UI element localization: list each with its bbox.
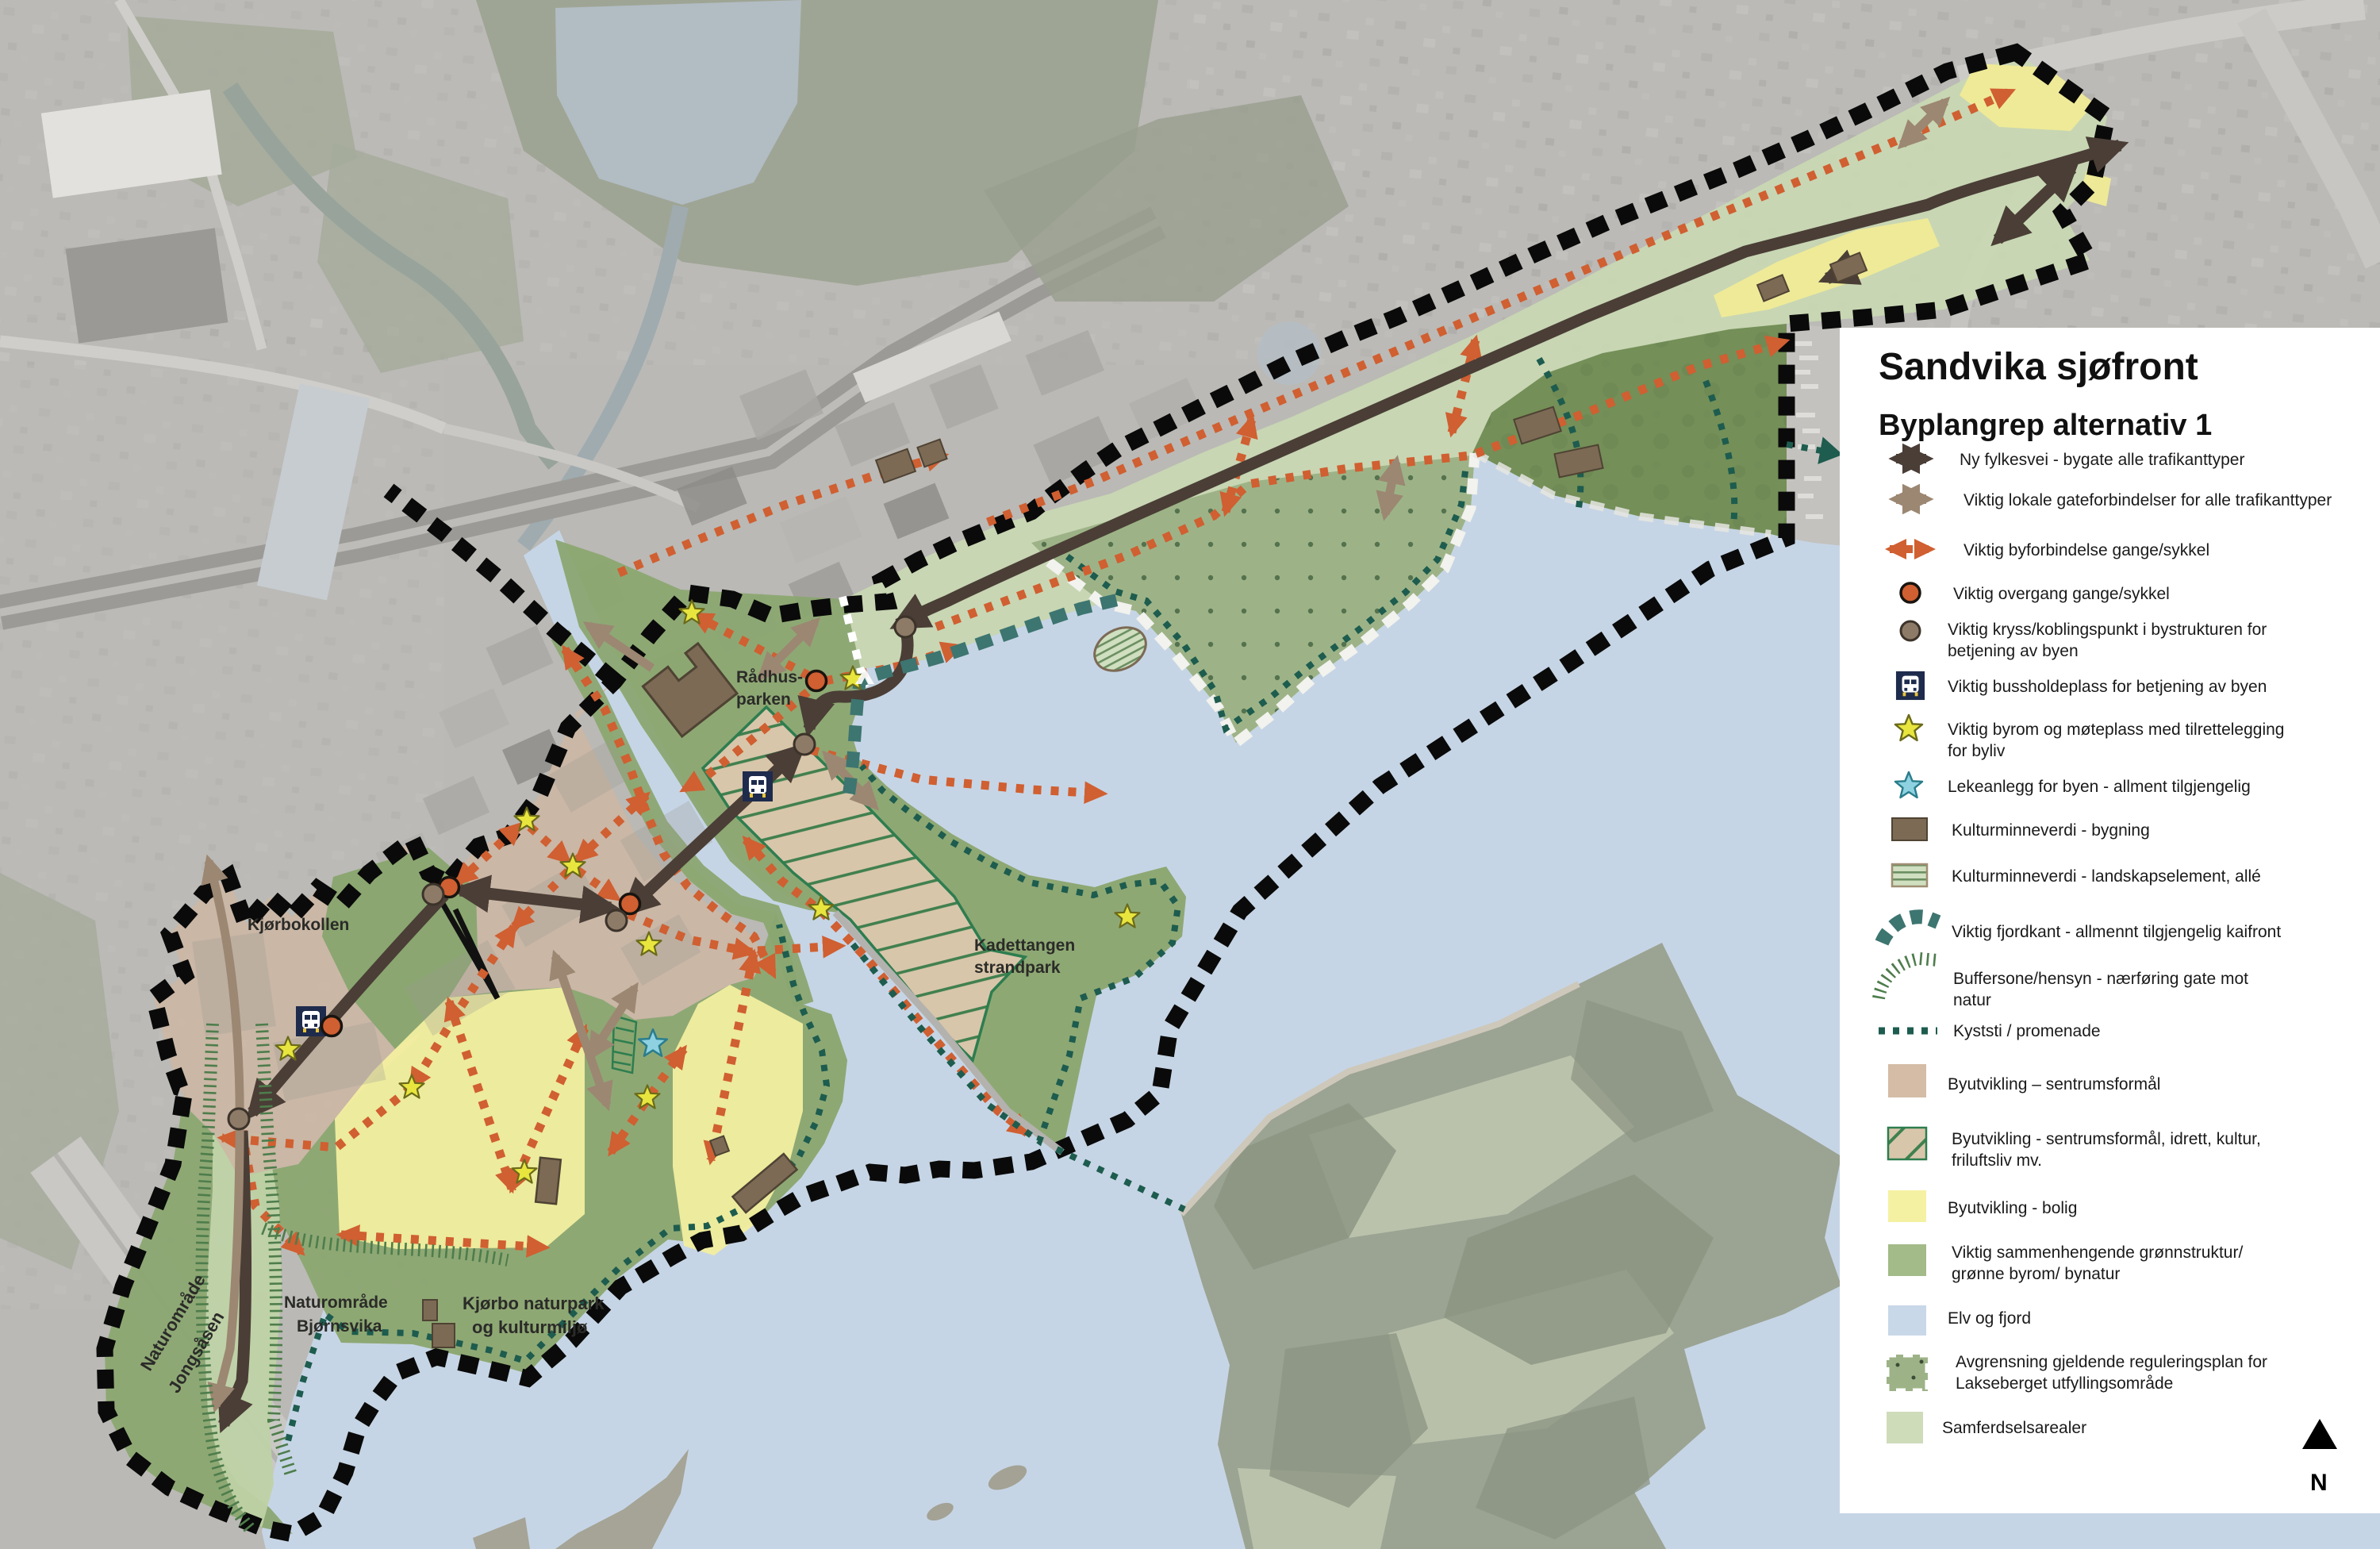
svg-text:parken: parken (736, 690, 791, 709)
svg-text:Rådhus-: Rådhus- (736, 668, 803, 686)
svg-text:Kulturminneverdi - landskapsel: Kulturminneverdi - landskapselement, all… (1952, 867, 2261, 886)
svg-text:Ny fylkesvei - bygate alle tra: Ny fylkesvei - bygate alle trafikanttype… (1960, 451, 2244, 469)
svg-text:Kjørbo naturpark: Kjørbo naturpark (463, 1293, 605, 1313)
svg-text:Viktig overgang gange/sykkel: Viktig overgang gange/sykkel (1953, 585, 2170, 603)
svg-text:natur: natur (1953, 991, 1991, 1009)
svg-text:Kyststi / promenade: Kyststi / promenade (1953, 1022, 2101, 1040)
svg-text:Viktig bussholdeplass for betj: Viktig bussholdeplass for betjening av b… (1948, 678, 2267, 696)
svg-text:Samferdselsarealer: Samferdselsarealer (1942, 1419, 2086, 1437)
svg-text:Byutvikling – sentrumsformål: Byutvikling – sentrumsformål (1948, 1075, 2160, 1094)
svg-text:grønne byrom/ bynatur: grønne byrom/ bynatur (1952, 1265, 2120, 1283)
svg-text:for byliv: for byliv (1948, 742, 2006, 760)
svg-text:Byplangrep alternativ 1: Byplangrep alternativ 1 (1879, 409, 2212, 442)
svg-text:Avgrensning gjeldende reguleri: Avgrensning gjeldende reguleringsplan fo… (1956, 1353, 2267, 1371)
svg-text:friluftsliv mv.: friluftsliv mv. (1952, 1151, 2042, 1170)
svg-text:betjening av byen: betjening av byen (1948, 642, 2079, 660)
svg-text:Viktig sammenhengende grønnstr: Viktig sammenhengende grønnstruktur/ (1952, 1243, 2243, 1262)
svg-text:Lakseberget utfyllingsområde: Lakseberget utfyllingsområde (1956, 1374, 2173, 1393)
svg-text:Viktig byrom og møteplass med: Viktig byrom og møteplass med tilrettele… (1948, 721, 2284, 739)
svg-text:og kulturmiljø: og kulturmiljø (472, 1317, 588, 1337)
svg-text:Byutvikling - sentrumsformål,: Byutvikling - sentrumsformål, idrett, ku… (1952, 1130, 2261, 1148)
svg-text:Bjørnsvika: Bjørnsvika (297, 1317, 382, 1336)
svg-text:Viktig kryss/koblingspunkt i b: Viktig kryss/koblingspunkt i bystrukture… (1948, 621, 2267, 639)
svg-text:Viktig byforbindelse gange/syk: Viktig byforbindelse gange/sykkel (1963, 541, 2209, 559)
svg-text:Byutvikling - bolig: Byutvikling - bolig (1948, 1199, 2077, 1217)
svg-text:Viktig fjordkant - allmennt ti: Viktig fjordkant - allmennt tilgjengelig… (1952, 923, 2281, 941)
svg-text:Elv og fjord: Elv og fjord (1948, 1309, 2031, 1328)
svg-text:Kjørbokollen: Kjørbokollen (248, 916, 349, 934)
svg-text:Viktig lokale gateforbindelser: Viktig lokale gateforbindelser for alle … (1963, 491, 2332, 509)
svg-text:N: N (2310, 1470, 2328, 1496)
svg-text:Buffersone/hensyn - nærføring: Buffersone/hensyn - nærføring gate mot (1953, 970, 2248, 988)
svg-text:Naturområde: Naturområde (284, 1293, 388, 1312)
svg-text:Lekeanlegg for byen - allment: Lekeanlegg for byen - allment tilgjengel… (1948, 778, 2251, 796)
svg-text:Kulturminneverdi - bygning: Kulturminneverdi - bygning (1952, 821, 2150, 840)
svg-text:Sandvika sjøfront: Sandvika sjøfront (1879, 346, 2198, 388)
svg-text:Kadettangen: Kadettangen (974, 936, 1075, 955)
svg-text:strandpark: strandpark (974, 959, 1061, 977)
